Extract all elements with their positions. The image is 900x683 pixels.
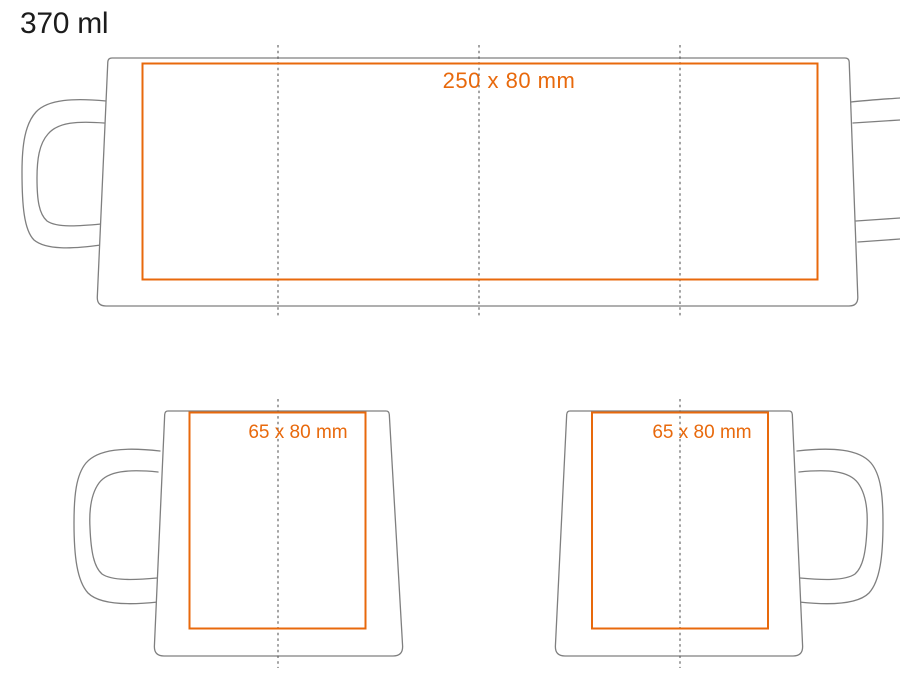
print-area-label: 65 x 80 mm bbox=[652, 422, 751, 443]
diagram-svg: 370 ml 250 x bbox=[0, 0, 900, 683]
right-handle-cut-line bbox=[858, 239, 900, 242]
right-handle-hole-outline bbox=[799, 471, 867, 580]
print-area-label: 250 x 80 mm bbox=[443, 68, 576, 93]
back-view-handle bbox=[797, 449, 883, 603]
left-handle-hole-outline bbox=[37, 122, 104, 226]
mug-print-template: 370 ml 250 x bbox=[0, 0, 900, 683]
wrap-view: 250 x 80 mm bbox=[22, 45, 900, 316]
wrap-view-body-group bbox=[97, 58, 858, 306]
right-handle-cut-line bbox=[856, 218, 900, 221]
volume-label: 370 ml bbox=[20, 7, 108, 40]
front-view-handle bbox=[74, 449, 160, 603]
front-view: 65 x 80 mm bbox=[74, 399, 403, 668]
print-area-label: 65 x 80 mm bbox=[248, 422, 347, 443]
mug-body-outline bbox=[97, 58, 858, 306]
right-handle-cut-line bbox=[853, 120, 900, 123]
back-view: 65 x 80 mm bbox=[555, 399, 883, 668]
right-handle-cut-line bbox=[851, 98, 900, 102]
left-handle-hole-outline bbox=[90, 471, 158, 580]
